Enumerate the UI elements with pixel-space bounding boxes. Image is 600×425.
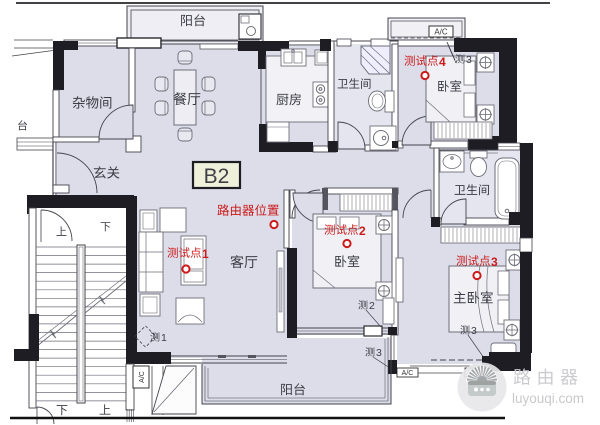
svg-text:1: 1 (161, 332, 167, 344)
svg-text:2: 2 (359, 224, 366, 238)
svg-text:B2: B2 (204, 165, 230, 188)
svg-text:A/C: A/C (402, 370, 414, 377)
svg-text:3: 3 (471, 325, 477, 337)
svg-text:A/C: A/C (139, 371, 146, 383)
svg-text:3: 3 (376, 347, 382, 359)
svg-text:3: 3 (466, 54, 472, 66)
svg-text:luyouqi.com: luyouqi.com (512, 391, 584, 406)
svg-text:2: 2 (369, 300, 375, 312)
svg-text:A/C: A/C (434, 28, 448, 37)
svg-text:1: 1 (202, 247, 209, 261)
svg-text:4: 4 (439, 55, 446, 69)
svg-text:3: 3 (491, 255, 498, 269)
